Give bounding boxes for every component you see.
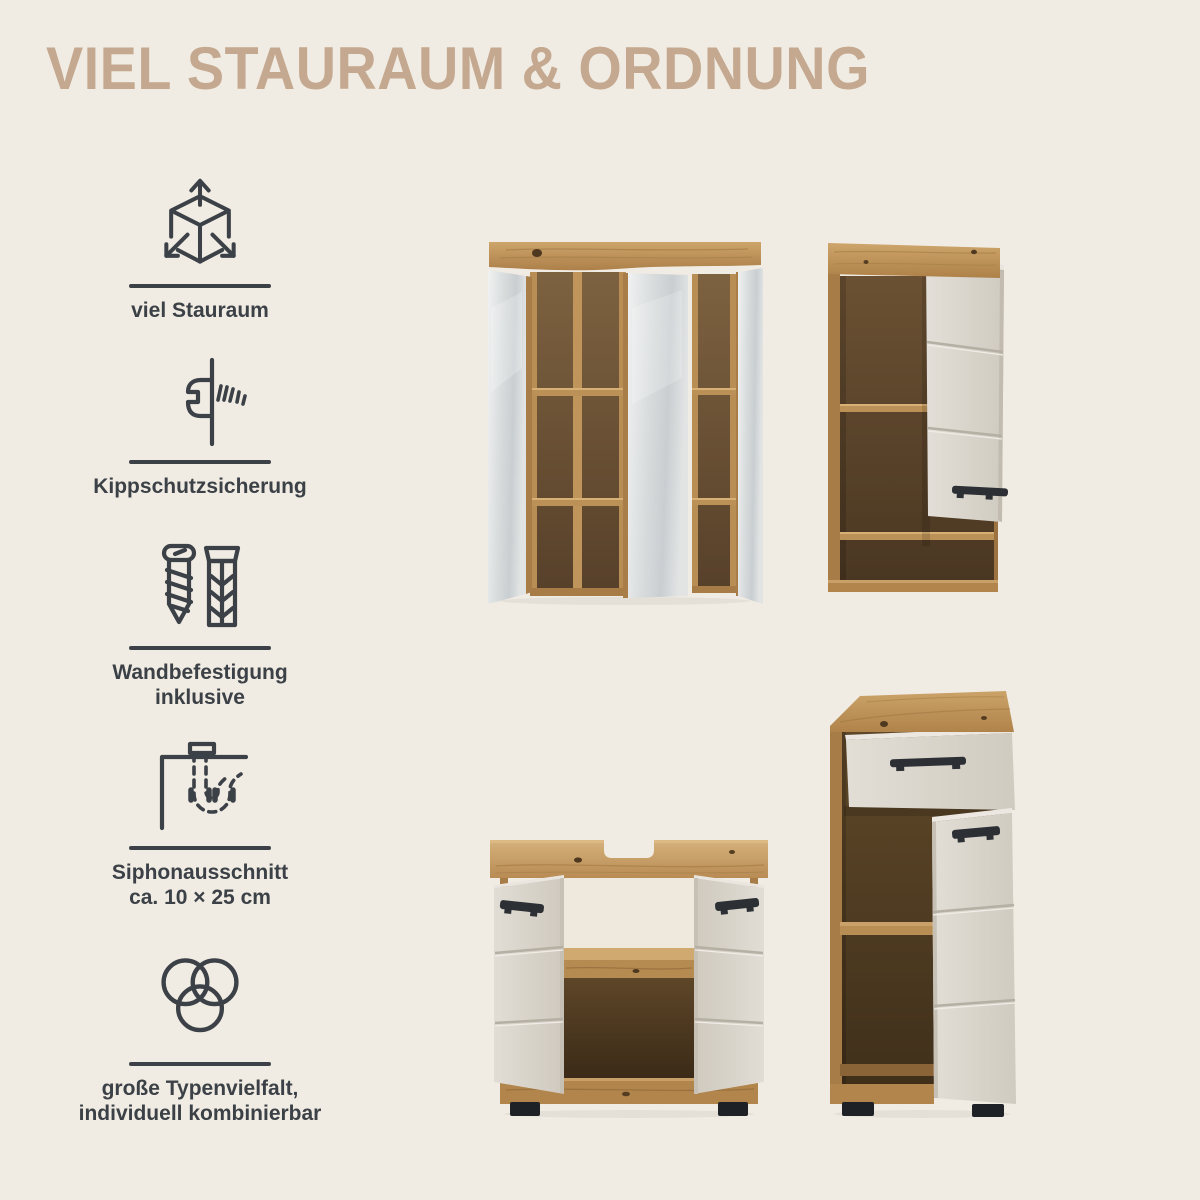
mirror-cabinet-image	[486, 238, 764, 606]
overlapping-circles-icon	[148, 950, 252, 1054]
tall-cabinet-image	[826, 688, 1018, 1118]
feature-label: Siphonausschnitt ca. 10 × 25 cm	[55, 860, 345, 910]
feature-typenvielfalt: große Typenvielfalt, individuell kombini…	[55, 950, 345, 1126]
feature-divider	[129, 646, 271, 650]
feature-divider	[129, 460, 271, 464]
cabinet-foot	[972, 1104, 1004, 1117]
feature-label: Kippschutzsicherung	[55, 474, 345, 499]
feature-divider	[129, 284, 271, 288]
feature-divider	[129, 1062, 271, 1066]
sink-vanity-cabinet-image	[486, 826, 772, 1118]
cabinet-foot	[842, 1102, 874, 1116]
feature-label: große Typenvielfalt, individuell kombini…	[55, 1076, 345, 1126]
feature-wandbefestigung: Wandbefestigung inklusive	[55, 538, 345, 710]
wall-cabinet-image	[826, 240, 1008, 600]
siphon-icon	[150, 738, 250, 838]
feature-viel-stauraum: viel Stauraum	[55, 176, 345, 323]
feature-siphonausschnitt: Siphonausschnitt ca. 10 × 25 cm	[55, 738, 345, 910]
screw-dowel-icon	[150, 538, 250, 638]
wall-screw-icon	[150, 352, 250, 452]
feature-label: viel Stauraum	[55, 298, 345, 323]
feature-divider	[129, 846, 271, 850]
cabinet-foot	[718, 1102, 748, 1116]
feature-kippschutzsicherung: Kippschutzsicherung	[55, 352, 345, 499]
cabinet-foot	[510, 1102, 540, 1116]
cube-arrows-icon	[150, 176, 250, 276]
page-title: VIEL STAURAUM & ORDNUNG	[46, 34, 870, 103]
feature-label: Wandbefestigung inklusive	[55, 660, 345, 710]
